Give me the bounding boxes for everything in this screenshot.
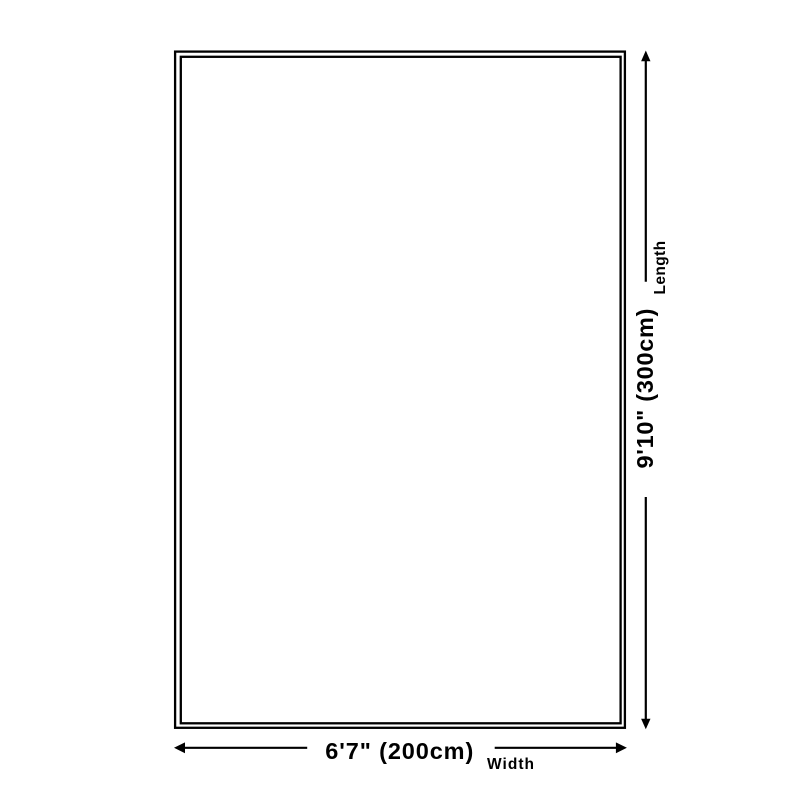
svg-text:9'10" (300cm): 9'10" (300cm) <box>632 309 658 469</box>
svg-text:Width: Width <box>487 756 534 773</box>
svg-text:Length: Length <box>652 241 669 295</box>
svg-text:6'7" (200cm): 6'7" (200cm) <box>325 738 473 764</box>
